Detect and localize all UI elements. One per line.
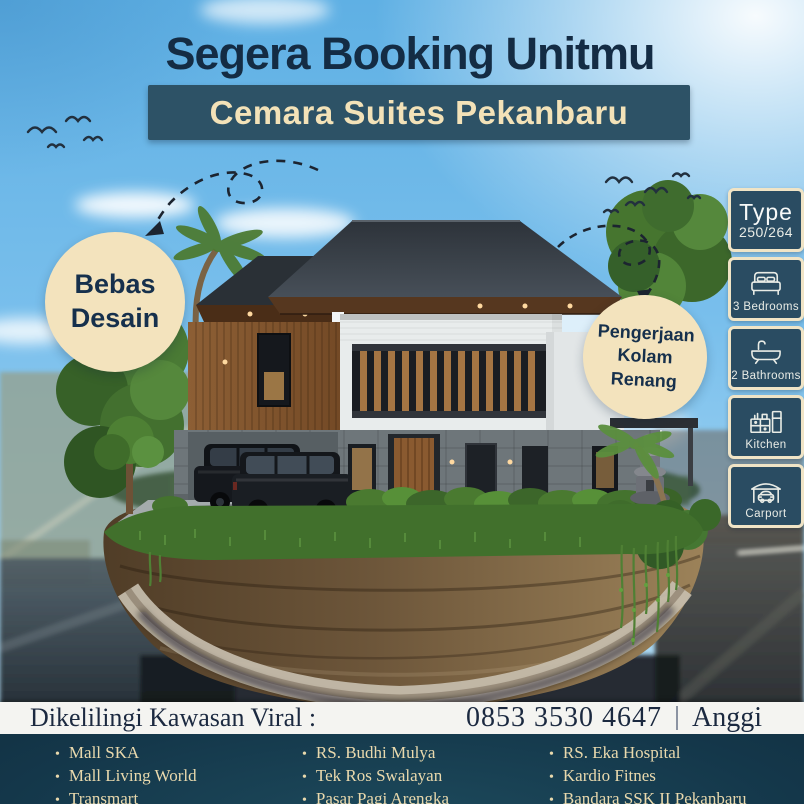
contact-name: Anggi xyxy=(692,702,762,734)
bullet-icon: • xyxy=(55,767,60,788)
project-name: Cemara Suites Pekanbaru xyxy=(210,94,629,132)
locations-column-2: •RS. Budhi Mulya •Tek Ros Swalayan •Pasa… xyxy=(302,742,549,804)
spec-tile-carport: Carport xyxy=(728,464,804,528)
page-title: Segera Booking Unitmu xyxy=(100,28,720,80)
bullet-icon: • xyxy=(55,790,60,804)
spec-tile-bathrooms: 2 Bathrooms xyxy=(728,326,804,390)
locations-column-3: •RS. Eka Hospital •Kardio Fitnes •Bandar… xyxy=(549,742,796,804)
bathtub-icon xyxy=(747,337,785,367)
list-item: •Tek Ros Swalayan xyxy=(302,765,549,788)
carport-icon xyxy=(747,475,785,505)
list-item: •Mall Living World xyxy=(55,765,302,788)
bullet-icon: • xyxy=(302,790,307,804)
divider xyxy=(676,706,678,730)
nearby-locations: •Mall SKA •Mall Living World •Transmart … xyxy=(0,734,804,804)
project-name-banner: Cemara Suites Pekanbaru xyxy=(148,85,690,140)
spec-tile-kitchen: Kitchen xyxy=(728,395,804,459)
list-item: •RS. Eka Hospital xyxy=(549,742,796,765)
bed-icon xyxy=(747,268,785,298)
info-bar: Dikelilingi Kawasan Viral : 0853 3530 46… xyxy=(0,702,804,734)
dashed-arrow-left-icon xyxy=(156,161,318,223)
list-item: •Pasar Pagi Arengka xyxy=(302,788,549,804)
phone-number: 0853 3530 4647 xyxy=(466,702,662,734)
list-item: •RS. Budhi Mulya xyxy=(302,742,549,765)
dashed-arrow-right-icon xyxy=(558,226,659,296)
kitchen-icon xyxy=(747,406,785,436)
bullet-icon: • xyxy=(302,744,307,765)
bullet-icon: • xyxy=(549,744,554,765)
bullet-icon: • xyxy=(549,790,554,804)
contact-info: 0853 3530 4647 Anggi xyxy=(466,702,762,734)
locations-column-1: •Mall SKA •Mall Living World •Transmart xyxy=(55,742,302,804)
free-design-badge: Bebas Desain xyxy=(45,232,185,372)
list-item: •Kardio Fitnes xyxy=(549,765,796,788)
list-item: •Bandara SSK II Pekanbaru xyxy=(549,788,796,804)
spec-tile-bedrooms: 3 Bedrooms xyxy=(728,257,804,321)
bullet-icon: • xyxy=(302,767,307,788)
spec-panel: Type 250/264 3 Bedrooms 2 Bathrooms xyxy=(728,188,804,528)
bullet-icon: • xyxy=(549,767,554,788)
list-item: •Mall SKA xyxy=(55,742,302,765)
list-item: •Transmart xyxy=(55,788,302,804)
property-flyer: Segera Booking Unitmu Cemara Suites Peka… xyxy=(0,0,804,804)
bullet-icon: • xyxy=(55,744,60,765)
spec-tile-type: Type 250/264 xyxy=(728,188,804,252)
surroundings-heading: Dikelilingi Kawasan Viral : xyxy=(30,703,316,733)
